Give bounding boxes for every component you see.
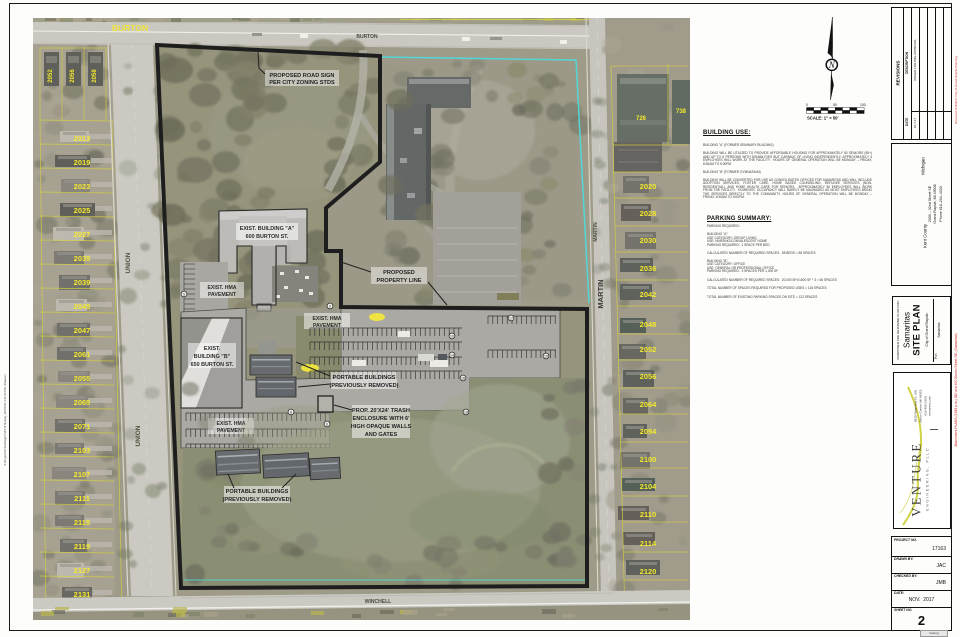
svg-text:SCALE: 1" = 50': SCALE: 1" = 50' — [807, 116, 839, 121]
svg-text:100: 100 — [860, 103, 866, 107]
svg-text:0: 0 — [806, 103, 808, 107]
svg-text:50: 50 — [833, 103, 837, 107]
svg-text:N: N — [828, 60, 836, 70]
